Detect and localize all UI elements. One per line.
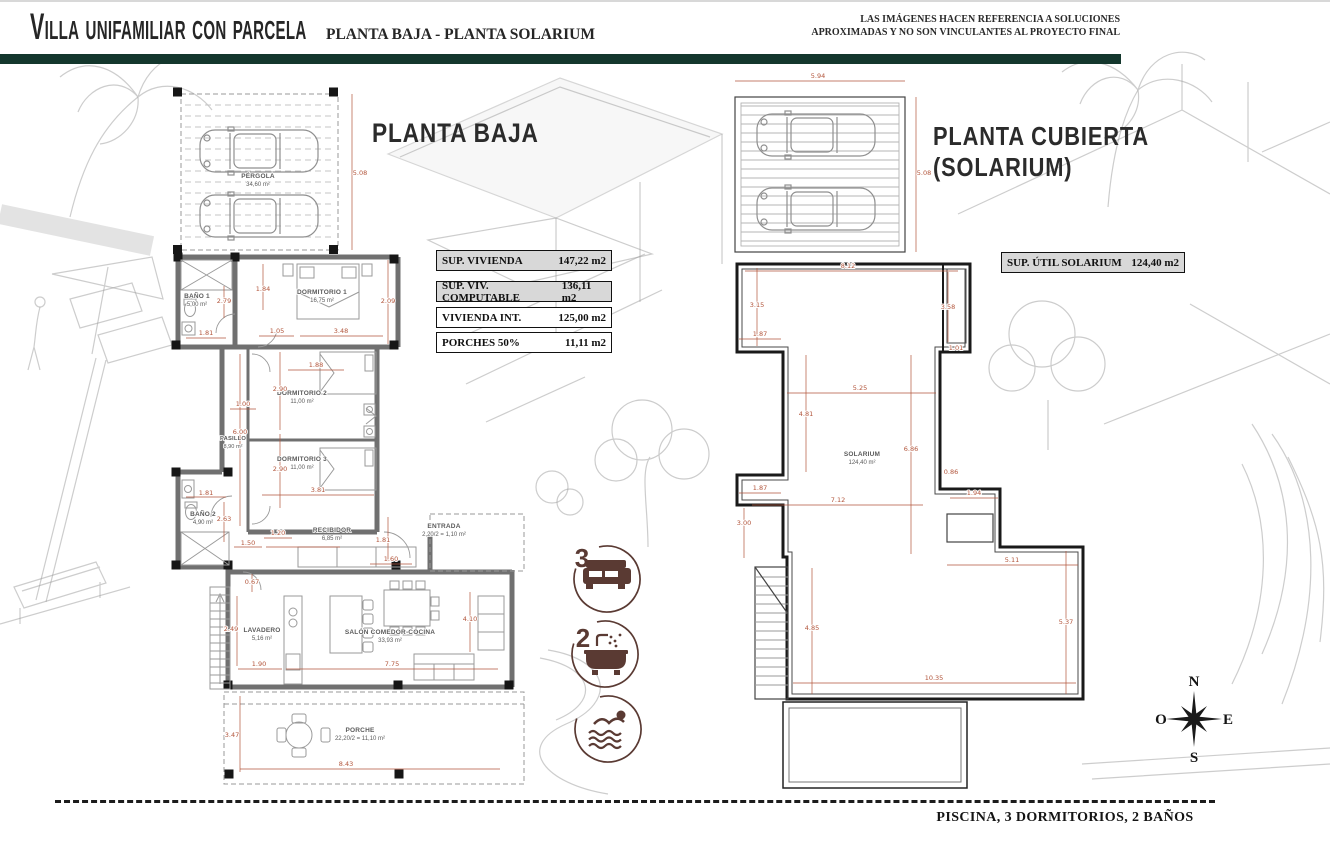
dimension: 5.08 [353, 169, 367, 177]
dimension: 7.12 [831, 496, 845, 504]
compass-east: E [1223, 712, 1233, 728]
row-value: 125,00 m2 [558, 312, 606, 324]
dimension: 2.09 [381, 297, 395, 305]
room-area: 34,60 m² [246, 182, 270, 188]
bedrooms-feature: 3 [567, 539, 647, 619]
dimension: 3.47 [225, 731, 239, 739]
table-row: SUP. VIV. COMPUTABLE 136,11 m2 [436, 281, 612, 302]
room-area: 22,20/2 = 11,10 m² [335, 736, 385, 742]
room-area: 2,20/2 = 1,10 m² [422, 532, 466, 538]
armchair [478, 596, 504, 650]
dimension: 6.00 [233, 428, 247, 436]
room-area: 16,75 m² [310, 298, 334, 304]
room-label: LAVADERO [243, 627, 280, 634]
dimension: 1.05 [270, 327, 284, 335]
sun-lounger-icon [70, 283, 172, 363]
room-label: DORMITORIO 1 [297, 289, 347, 296]
row-value: 147,22 m2 [558, 255, 606, 267]
dimension: 1.60 [384, 555, 398, 563]
room-label: SALÓN COMEDOR-COCINA [345, 627, 435, 636]
pergola-carport [173, 88, 352, 255]
dimension: 2.90 [273, 465, 287, 473]
row-value: 124,40 m2 [1131, 257, 1179, 269]
dimension: 3.00 [737, 519, 751, 527]
room-area: 11,00 m² [290, 399, 313, 405]
dimension: 8.12 [841, 262, 855, 270]
dimension: 5.25 [853, 384, 867, 392]
row-value: 136,11 m2 [562, 280, 606, 304]
room-area: 11,00 m² [290, 465, 313, 471]
row-label: SUP. ÚTIL SOLARIUM [1007, 257, 1122, 269]
dimension: 3.48 [334, 327, 348, 335]
room-label: DORMITORIO 3 [277, 456, 327, 463]
dimension: 1.81 [376, 536, 390, 544]
palm-tree-icon [60, 55, 212, 144]
door-arcs [211, 314, 410, 590]
room-area: 8,90 m² [224, 444, 243, 450]
solarium-staircase [755, 567, 788, 699]
accent-bar [0, 54, 1121, 64]
compass-south: S [1190, 750, 1198, 766]
room-area: 4,90 m² [193, 520, 213, 526]
row-label: SUP. VIV. COMPUTABLE [442, 280, 562, 304]
table-row: VIVIENDA INT. 125,00 m2 [436, 307, 612, 328]
compass-north: N [1189, 674, 1200, 690]
room-area: 5,16 m² [252, 636, 272, 642]
pool-feature [568, 689, 648, 769]
page-subtitle: PLANTA BAJA - PLANTA SOLARIUM [326, 26, 595, 44]
room-label: SOLARIUM [844, 451, 880, 458]
dimension: 1.01 [949, 344, 963, 352]
page-title: Villa unifamiliar con parcela [30, 6, 307, 48]
room-area: 6,85 m² [322, 536, 342, 542]
dimension: 2.49 [224, 625, 238, 633]
dimension: 4.10 [463, 615, 477, 623]
room-area: 5,00 m² [187, 302, 207, 308]
sofa [414, 654, 474, 664]
feature-icons: 3 2 [565, 539, 648, 769]
dimension: 5.11 [1005, 556, 1019, 564]
solarium-area-box: SUP. ÚTIL SOLARIUM 124,40 m2 [1001, 252, 1185, 273]
dining-table [384, 590, 430, 626]
bathroom-count: 2 [576, 623, 590, 653]
compass-star-icon [1166, 691, 1222, 747]
disclaimer-line: APROXIMADAS Y NO SON VINCULANTES AL PROY… [811, 27, 1120, 40]
table-row: PORCHES 50% 11,11 m2 [436, 332, 612, 353]
kitchen-unit [284, 596, 302, 684]
room-area: 33,93 m² [378, 638, 402, 644]
room-label: PÉRGOLA [241, 171, 275, 180]
dimension: 5.08 [917, 169, 931, 177]
bathrooms-feature: 2 [565, 614, 645, 694]
bed [320, 448, 376, 490]
table-row: SUP. VIVIENDA 147,22 m2 [436, 250, 612, 271]
table-row: SUP. ÚTIL SOLARIUM 124,40 m2 [1001, 252, 1185, 273]
dimension: 2.90 [273, 385, 287, 393]
planta-baja-title: PLANTA BAJA [372, 118, 539, 149]
room-label: BAÑO 1 [184, 291, 210, 300]
room-label: ENTRADA [427, 523, 460, 530]
room-label: RECIBIDOR [313, 527, 351, 534]
pergola-roof [735, 81, 916, 252]
dimension: 1.87 [753, 330, 767, 338]
dimension: 1.84 [256, 285, 270, 293]
solarium-title-line: PLANTA CUBIERTA [933, 121, 1149, 152]
room-area: 124,40 m² [848, 460, 875, 466]
dimension: 1.20 [271, 529, 285, 537]
disclaimer-line: LAS IMÁGENES HACEN REFERENCIA A SOLUCION… [811, 14, 1120, 27]
disclaimer: LAS IMÁGENES HACEN REFERENCIA A SOLUCION… [811, 14, 1120, 39]
dimension: 1.81 [199, 489, 213, 497]
area-summary-table: SUP. VIVIENDA 147,22 m2 SUP. VIV. COMPUT… [436, 250, 612, 353]
dimension: 4.81 [799, 410, 813, 418]
porch-table [286, 722, 312, 748]
compass-rose: N E S O [1155, 674, 1233, 766]
room-label: PORCHE [345, 727, 374, 734]
dimension: 2.63 [217, 515, 231, 523]
dimension: 3.58 [941, 303, 955, 311]
dimension: 1.87 [753, 484, 767, 492]
room-label: BAÑO 2 [190, 509, 216, 518]
dimension: 6.86 [904, 445, 918, 453]
dimension: 4.85 [805, 624, 819, 632]
row-label: SUP. VIVIENDA [442, 255, 523, 267]
dimension: 3.81 [311, 486, 325, 494]
dimension: 5.94 [811, 72, 825, 80]
bench-icon [14, 562, 106, 624]
dimension: 10.35 [925, 674, 944, 682]
swimmer-icon [589, 711, 626, 749]
planta-baja-plan: PÉRGOLA 34,60 m² BAÑO 1 5,00 m² DORMITOR… [172, 88, 525, 785]
row-label: PORCHES 50% [442, 337, 520, 349]
footer-divider [55, 800, 1215, 803]
dimension: 5.37 [1059, 618, 1073, 626]
footer-summary: PISCINA, 3 DORMITORIOS, 2 BAÑOS [905, 810, 1225, 826]
dimension: 1.00 [236, 400, 250, 408]
bed-icon [583, 560, 631, 589]
dimension: 1.90 [252, 660, 266, 668]
bed [320, 352, 376, 394]
dimension: 0.86 [944, 468, 958, 476]
dimension: 0.67 [245, 578, 259, 586]
room-label: PASILLO [220, 436, 246, 442]
solarium-outline [737, 264, 1083, 699]
porch-roof-outline [783, 702, 967, 788]
dimension: 1.94 [967, 489, 981, 497]
tree-icon [595, 400, 709, 547]
plan-sheet: PÉRGOLA 34,60 m² BAÑO 1 5,00 m² DORMITOR… [0, 0, 1330, 866]
row-label: VIVIENDA INT. [442, 312, 521, 324]
kitchen-island [330, 596, 362, 653]
dimension: 1.88 [309, 361, 323, 369]
bathtub-icon [584, 634, 628, 675]
dimension: 7.75 [385, 660, 399, 668]
solarium-title: PLANTA CUBIERTA (SOLARIUM) [933, 121, 1149, 183]
dimension: 1.50 [241, 539, 255, 547]
compass-west: O [1155, 712, 1167, 728]
interior-walls [248, 347, 377, 532]
umbrella-icon [52, 257, 163, 354]
solarium-title-line: (SOLARIUM) [933, 152, 1149, 183]
dimension: 3.15 [750, 301, 764, 309]
dimension: 8.43 [339, 760, 353, 768]
dimension: 2.79 [217, 297, 231, 305]
row-value: 11,11 m2 [565, 337, 606, 349]
dimension: 1.81 [199, 329, 213, 337]
tree-icon [989, 301, 1105, 450]
